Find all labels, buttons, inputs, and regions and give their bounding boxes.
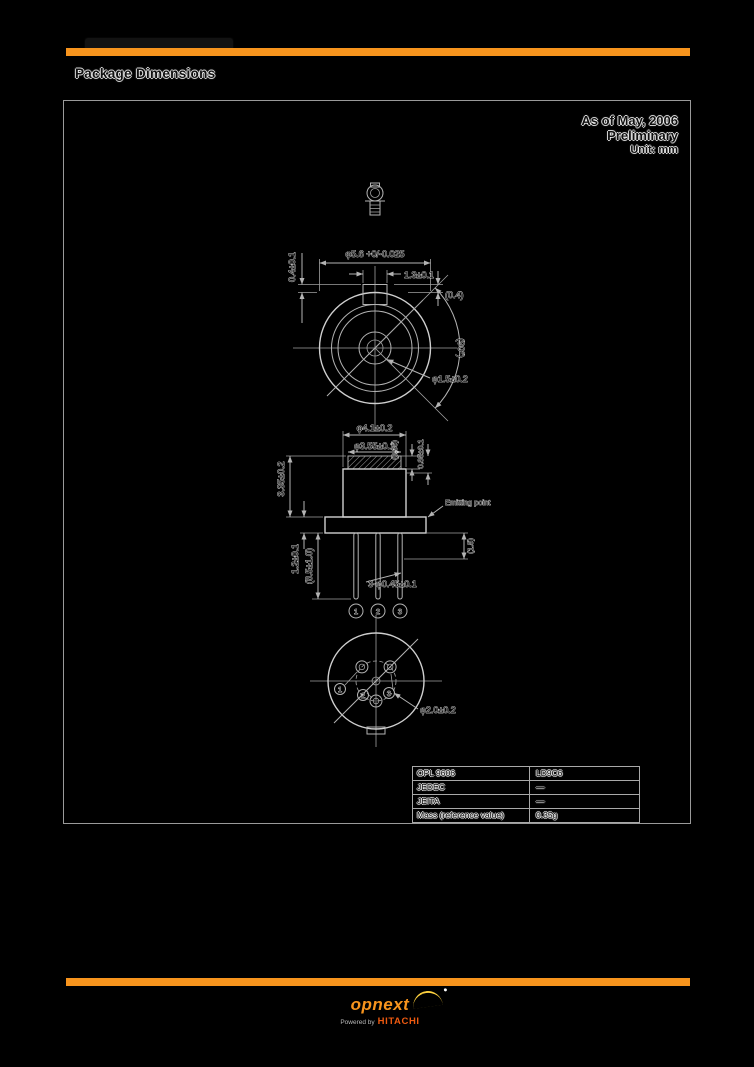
dim-view-angle: (90°) xyxy=(456,338,466,358)
table-cell-value: 0.35g xyxy=(529,809,639,822)
page-title: Package Dimensions xyxy=(75,66,215,81)
opnext-logo: opnext Powered byHITACHI xyxy=(322,995,438,1027)
table-cell-label: Mass (reference value) xyxy=(413,809,529,822)
table-row: JEDEC — xyxy=(413,780,639,794)
flange-outline-side xyxy=(325,517,426,533)
bottom-accent-bar xyxy=(66,978,690,986)
dim-window-offset: 0.85±0.1 xyxy=(416,439,425,468)
datasheet-page: { "header": { "title": "Package Dimensio… xyxy=(0,0,754,1067)
bottom-view-pin-numbers: 1 2 3 xyxy=(335,672,395,701)
dim-lead-dia: 3-φ0.45±0.1 xyxy=(368,579,417,589)
pin-2-label-bottom: 2 xyxy=(361,691,365,700)
table-cell-value: — xyxy=(529,795,639,808)
side-view-pin-numbers: 1 2 3 xyxy=(349,604,407,618)
front-view: φ5.6 +0/-0.025 1.3±0.1 (0.4) 0.4±0.1 (9 xyxy=(287,249,468,430)
cap-outline xyxy=(343,469,406,517)
table-row: Mass (reference value) 0.35g xyxy=(413,808,639,822)
swoosh-icon xyxy=(411,989,443,1009)
dim-window-recess: (0.35) xyxy=(390,440,399,460)
dim-flange-thickness: 1.2±0.1 xyxy=(290,544,300,574)
table-cell-value: — xyxy=(529,781,639,794)
pin-3-label-bottom: 3 xyxy=(387,689,391,698)
pin-1-label-bottom: 1 xyxy=(338,685,342,694)
top-accent-bar xyxy=(66,48,690,56)
opnext-wordmark: opnext xyxy=(351,995,410,1015)
dim-window-dia: φ3.55±0.1 xyxy=(354,441,395,451)
dim-lead-length: (8.5±1.0) xyxy=(304,548,314,584)
dim-tab-height: 0.4±0.1 xyxy=(287,252,297,282)
emitting-point-label: Emitting point xyxy=(445,498,491,507)
package-drawing: φ5.6 +0/-0.025 1.3±0.1 (0.4) 0.4±0.1 (9 xyxy=(64,101,689,822)
hitachi-wordmark: HITACHI xyxy=(378,1016,420,1027)
pin-2-label: 2 xyxy=(376,607,380,616)
dim-lead-standoff: (1.5) xyxy=(466,538,475,554)
pin-3-label: 3 xyxy=(398,607,402,616)
package-code-table: OPL 9606 LD9C6 JEDEC — JEITA — Mass (ref… xyxy=(412,766,640,823)
table-cell-value: LD9C6 xyxy=(529,767,639,780)
pin-1-label: 1 xyxy=(354,607,358,616)
side-view: 1 2 3 φ4.1±0.2 φ3.55±0.1 (0.35) 0. xyxy=(276,423,491,618)
dim-aperture: φ1.5±0.2 xyxy=(432,374,468,384)
table-cell-label: JEITA xyxy=(413,795,529,808)
dim-cap-dia: φ4.1±0.2 xyxy=(357,423,393,433)
lead-2 xyxy=(376,533,380,599)
table-cell-label: JEDEC xyxy=(413,781,529,794)
table-cell-label: OPL 9606 xyxy=(413,767,529,780)
dim-tab-width: 1.3±0.1 xyxy=(404,270,434,280)
lead-1 xyxy=(354,533,358,599)
table-row: JEITA — xyxy=(413,794,639,808)
dim-cap-height: 3.35±0.2 xyxy=(276,462,286,497)
top-mini-view xyxy=(365,183,385,215)
dim-tab-thickness: (0.4) xyxy=(445,290,464,300)
table-row: OPL 9606 LD9C6 xyxy=(413,767,639,780)
powered-by-line: Powered byHITACHI xyxy=(322,1016,438,1027)
dim-pcd: φ2.0±0.2 xyxy=(420,705,456,715)
dim-cap-od: φ5.6 +0/-0.025 xyxy=(345,249,404,259)
lead-3 xyxy=(398,533,402,599)
powered-by-text: Powered by xyxy=(340,1019,374,1026)
bottom-view: 1 2 3 φ2.0±0.2 xyxy=(310,615,456,747)
package-drawing-frame: As of May, 2006 Preliminary Unit: mm xyxy=(63,100,691,824)
